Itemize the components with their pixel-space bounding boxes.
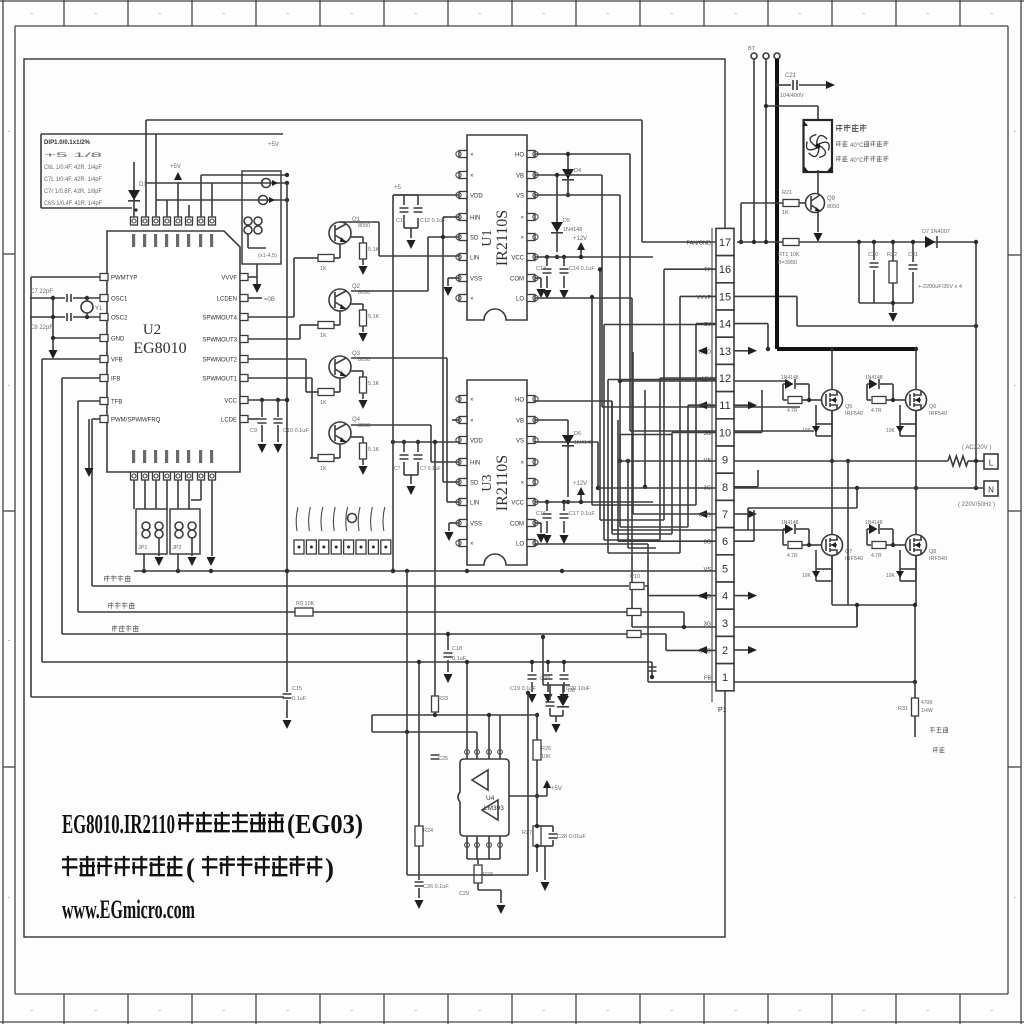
svg-text:IR2110S: IR2110S [494,210,511,266]
svg-text:C7L 1/0.4F. 42R. 1/4pF: C7L 1/0.4F. 42R. 1/4pF [44,177,102,183]
svg-text:1K: 1K [320,400,327,406]
svg-text:0.1uF: 0.1uF [452,656,467,662]
svg-text:·: · [415,8,418,18]
svg-text:LIN: LIN [470,256,479,262]
svg-text:BT: BT [748,46,756,52]
svg-text:D7 1N4007: D7 1N4007 [922,229,950,235]
svg-text:1: 1 [722,672,728,684]
svg-text:3G: 3G [704,621,711,627]
svg-text:·: · [223,8,226,18]
svg-text:R24: R24 [423,828,433,834]
svg-text:(EG03): (EG03) [287,809,363,839]
svg-text:5.1K: 5.1K [368,381,380,387]
svg-text:·: · [799,8,802,18]
svg-text:IRF540: IRF540 [929,411,947,417]
svg-text:GND: GND [111,337,125,343]
svg-text:VSS: VSS [470,522,482,528]
svg-text:EG8010: EG8010 [133,340,186,357]
svg-text:+5V: +5V [170,164,181,170]
svg-text:FAN/GND: FAN/GND [687,241,711,247]
svg-text:17: 17 [719,237,731,249]
svg-text:C14 0.1uF: C14 0.1uF [569,266,595,272]
svg-text:R21: R21 [782,190,792,196]
svg-text:1N4148: 1N4148 [563,227,582,233]
svg-text:10: 10 [719,427,731,439]
svg-text:1K: 1K [782,210,789,216]
svg-text:EG8010.IR2110: EG8010.IR2110 [62,809,175,839]
svg-text:R10: R10 [630,574,640,580]
svg-text:L: L [989,459,994,468]
svg-text:HIN: HIN [470,461,480,467]
svg-text:·: · [8,635,11,645]
svg-text:VSS: VSS [470,277,482,283]
svg-text:Q5: Q5 [845,404,852,410]
svg-text:C25: C25 [438,756,448,762]
svg-text:HIN: HIN [470,216,480,222]
svg-text:104/400V: 104/400V [780,93,804,99]
svg-text:VCC: VCC [511,501,524,507]
svg-text:SPWMOUT2: SPWMOUT2 [202,358,237,364]
svg-text:470K: 470K [921,700,933,706]
svg-text:·: · [95,1005,98,1015]
svg-text:·: · [8,380,11,390]
svg-text:+12V: +12V [573,236,587,242]
svg-text:7: 7 [722,509,728,521]
svg-text:(x1-4,5): (x1-4,5) [258,253,277,259]
svg-text:LIN: LIN [470,501,479,507]
svg-text:·: · [351,1005,354,1015]
svg-text:5.1K: 5.1K [368,314,380,320]
svg-text:5: 5 [722,563,728,575]
svg-text:( AC220V ): ( AC220V ) [962,445,991,451]
svg-text:Y1: Y1 [95,306,103,312]
svg-text:·: · [1014,892,1017,902]
svg-text:( 220V/50Hz ): ( 220V/50Hz ) [958,502,995,508]
svg-text:4.7R: 4.7R [871,553,882,559]
svg-text:VB: VB [516,174,524,180]
svg-text:IRF540: IRF540 [929,556,947,562]
svg-text:1/4W: 1/4W [921,708,933,714]
svg-text:R9 10K: R9 10K [296,601,315,607]
svg-text:·: · [31,1005,34,1015]
svg-text:·: · [543,8,546,18]
svg-text:×: × [470,398,474,404]
svg-text:10K: 10K [886,573,896,579]
svg-text:JP2: JP2 [172,545,181,551]
svg-text:3: 3 [722,618,728,630]
svg-text:OSC2: OSC2 [111,316,128,322]
svg-text:·: · [95,8,98,18]
svg-text:R27: R27 [522,830,532,836]
svg-text:1K: 1K [320,266,327,272]
svg-text:·: · [31,8,34,18]
svg-text:U3: U3 [480,474,495,491]
svg-text:RT1 10K: RT1 10K [778,252,800,258]
svg-text:×: × [470,153,474,159]
svg-text:): ) [325,853,334,883]
svg-text:VDD: VDD [470,439,483,445]
svg-text:·: · [479,8,482,18]
svg-text:DIP1.0/0.1x1/2%: DIP1.0/0.1x1/2% [44,140,91,146]
svg-text:C16: C16 [536,511,546,517]
svg-text:10K: 10K [802,573,812,579]
svg-text:TFB: TFB [111,400,122,406]
svg-text:×: × [470,542,474,548]
svg-text:C8 22pF: C8 22pF [30,325,53,331]
svg-text:·: · [351,8,354,18]
svg-text:5.1K: 5.1K [368,447,380,453]
svg-text:·: · [735,8,738,18]
svg-text:D5: D5 [563,218,570,224]
svg-text:·: · [991,8,994,18]
svg-text:·: · [799,1005,802,1015]
svg-text:SPWMOUT4: SPWMOUT4 [202,316,237,322]
svg-text:4.7R: 4.7R [787,553,798,559]
svg-text:VCC: VCC [224,399,237,405]
svg-text:14: 14 [719,319,731,331]
svg-text:×: × [470,419,474,425]
svg-text:8050: 8050 [358,223,370,229]
svg-text:11: 11 [719,400,730,412]
svg-text:1N4148: 1N4148 [781,375,799,381]
svg-text:VCC: VCC [511,256,524,262]
svg-text:4.7R: 4.7R [787,408,798,414]
svg-text:6: 6 [722,536,728,548]
svg-text:1N4148: 1N4148 [781,520,799,526]
svg-text:·: · [223,1005,226,1015]
svg-text:C7r 1/0.8F. 42R. 1/8pF: C7r 1/0.8F. 42R. 1/8pF [44,189,102,195]
svg-text:R23: R23 [438,696,448,702]
svg-text:LCDE: LCDE [221,418,237,424]
svg-text:C31: C31 [908,252,918,258]
svg-text:·: · [607,8,610,18]
svg-text:0.1uF: 0.1uF [292,696,307,702]
svg-text:SD: SD [470,236,479,242]
svg-text:15: 15 [719,291,731,303]
svg-text:VVVF: VVVF [221,276,237,282]
svg-text:C7 22pF: C7 22pF [30,289,53,295]
svg-text:C17 0.1uF: C17 0.1uF [569,511,595,517]
svg-text:C26 0.1uF: C26 0.1uF [423,884,449,890]
svg-text:VS: VS [516,439,524,445]
svg-text:=0B: =0B [264,297,275,303]
svg-text:www.EGmicro.com: www.EGmicro.com [62,895,195,924]
svg-text:LO: LO [516,542,524,548]
svg-text:1K: 1K [320,466,327,472]
svg-text:8050: 8050 [358,423,370,429]
svg-text:4: 4 [722,591,728,603]
svg-text:SPWMOUT3: SPWMOUT3 [202,338,237,344]
svg-text:VS: VS [516,194,524,200]
svg-text:R26: R26 [541,746,551,752]
svg-text:·: · [159,8,162,18]
svg-text:C30: C30 [868,252,878,258]
svg-text:C6S 1/0.4F. 42R. 1/4pF: C6S 1/0.4F. 42R. 1/4pF [44,201,102,207]
svg-text:R31: R31 [898,706,908,712]
svg-text:VS: VS [704,567,712,573]
svg-text:C11: C11 [396,218,406,224]
svg-text:C9: C9 [250,428,257,434]
svg-text:8: 8 [722,482,728,494]
svg-text:·: · [415,1005,418,1015]
svg-text:·: · [863,1005,866,1015]
svg-text:·: · [287,1005,290,1015]
svg-text:×: × [520,236,524,242]
svg-text:C6L 1/0.4F. 42R. 1/4pF: C6L 1/0.4F. 42R. 1/4pF [44,165,102,171]
svg-text:LCDEN: LCDEN [217,297,237,303]
svg-text:12: 12 [719,373,731,385]
svg-text:5.1K: 5.1K [368,247,380,253]
svg-text:C18: C18 [452,646,462,652]
svg-text:·: · [927,1005,930,1015]
svg-text:·: · [8,892,11,902]
svg-text:D8: D8 [568,688,575,694]
svg-text:16: 16 [719,264,731,276]
svg-text:B=3950: B=3950 [778,260,797,266]
svg-text:+12V: +12V [573,481,587,487]
svg-text:1K: 1K [320,333,327,339]
svg-text:×: × [470,174,474,180]
svg-text:·: · [735,1005,738,1015]
svg-text:×: × [520,481,524,487]
svg-text:N: N [988,486,994,495]
svg-text:COM: COM [510,277,524,283]
svg-text:HO: HO [515,153,524,159]
svg-text:FB: FB [704,676,711,682]
svg-text:2: 2 [722,645,728,657]
svg-text:C15: C15 [292,686,302,692]
svg-text:D4: D4 [574,168,581,174]
svg-text:·: · [863,8,866,18]
svg-text:10K: 10K [802,428,812,434]
svg-text:U4: U4 [486,795,495,802]
svg-text:SPWMOUT1: SPWMOUT1 [202,377,237,383]
svg-text:·: · [159,1005,162,1015]
svg-text:COM: COM [510,522,524,528]
svg-text:C13: C13 [536,266,546,272]
svg-text:×: × [520,461,524,467]
svg-text:VB: VB [516,419,524,425]
svg-text:SD: SD [470,481,479,487]
svg-text:Q9: Q9 [827,196,836,202]
svg-text:IFB: IFB [111,377,120,383]
svg-text:LM393: LM393 [484,805,504,812]
svg-text:OSC1: OSC1 [111,297,128,303]
svg-text:(: ( [186,853,195,883]
svg-text:LO: LO [516,297,524,303]
svg-text:Q8: Q8 [929,549,936,555]
svg-text:PWMTYP: PWMTYP [111,276,137,282]
svg-text:·: · [1014,380,1017,390]
svg-text:R22: R22 [887,252,897,258]
svg-text:9: 9 [722,455,728,467]
svg-text:4.7R: 4.7R [871,408,882,414]
svg-text:·: · [543,1005,546,1015]
svg-text:·: · [479,1005,482,1015]
svg-text:40°C: 40°C [850,158,864,164]
svg-text:·: · [671,1005,674,1015]
svg-text:Q6: Q6 [929,404,936,410]
svg-text:C24: C24 [540,676,550,682]
svg-text:13: 13 [719,346,731,358]
svg-text:·: · [671,8,674,18]
svg-text:D6: D6 [574,431,581,437]
svg-text:·: · [287,8,290,18]
svg-text:VDD: VDD [470,194,483,200]
svg-text:VFB: VFB [111,358,123,364]
svg-text:C21: C21 [785,73,797,79]
svg-text:×: × [470,297,474,303]
svg-text:·: · [927,8,930,18]
svg-text:+5 1/8: +5 1/8 [44,153,104,159]
svg-text:8050: 8050 [827,204,839,210]
svg-text:·: · [607,1005,610,1015]
svg-text:+5V: +5V [551,786,562,792]
svg-text:IR2110S: IR2110S [494,455,511,511]
svg-text:+-2200uF/35V x 4: +-2200uF/35V x 4 [918,284,962,290]
svg-text:·: · [8,126,11,136]
svg-text:C29: C29 [459,891,469,897]
svg-text:IRF540: IRF540 [845,411,863,417]
svg-text:C? 0.1uF: C? 0.1uF [420,466,441,472]
svg-text:C19 0.1uF: C19 0.1uF [510,686,536,692]
svg-text:×: × [520,216,524,222]
svg-text:·: · [991,1005,994,1015]
svg-text:40°C: 40°C [850,143,864,149]
svg-text:HO: HO [515,398,524,404]
svg-text:JP1: JP1 [138,545,147,551]
svg-text:C?: C? [394,466,401,472]
svg-text:·: · [1014,126,1017,136]
svg-text:1N4148: 1N4148 [574,440,593,446]
svg-text:+5V: +5V [268,142,279,148]
svg-text:1N4148: 1N4148 [865,375,883,381]
svg-text:U1: U1 [480,229,495,246]
svg-text:C28 0.01uF: C28 0.01uF [557,834,586,840]
svg-text:U2: U2 [143,322,161,338]
svg-text:10K: 10K [886,428,896,434]
svg-text:+5: +5 [394,185,402,191]
svg-text:10K: 10K [541,754,551,760]
svg-text:1N4148: 1N4148 [865,520,883,526]
svg-text:PWM/SPWM/FRQ: PWM/SPWM/FRQ [111,418,161,424]
svg-text:P1: P1 [718,707,727,714]
